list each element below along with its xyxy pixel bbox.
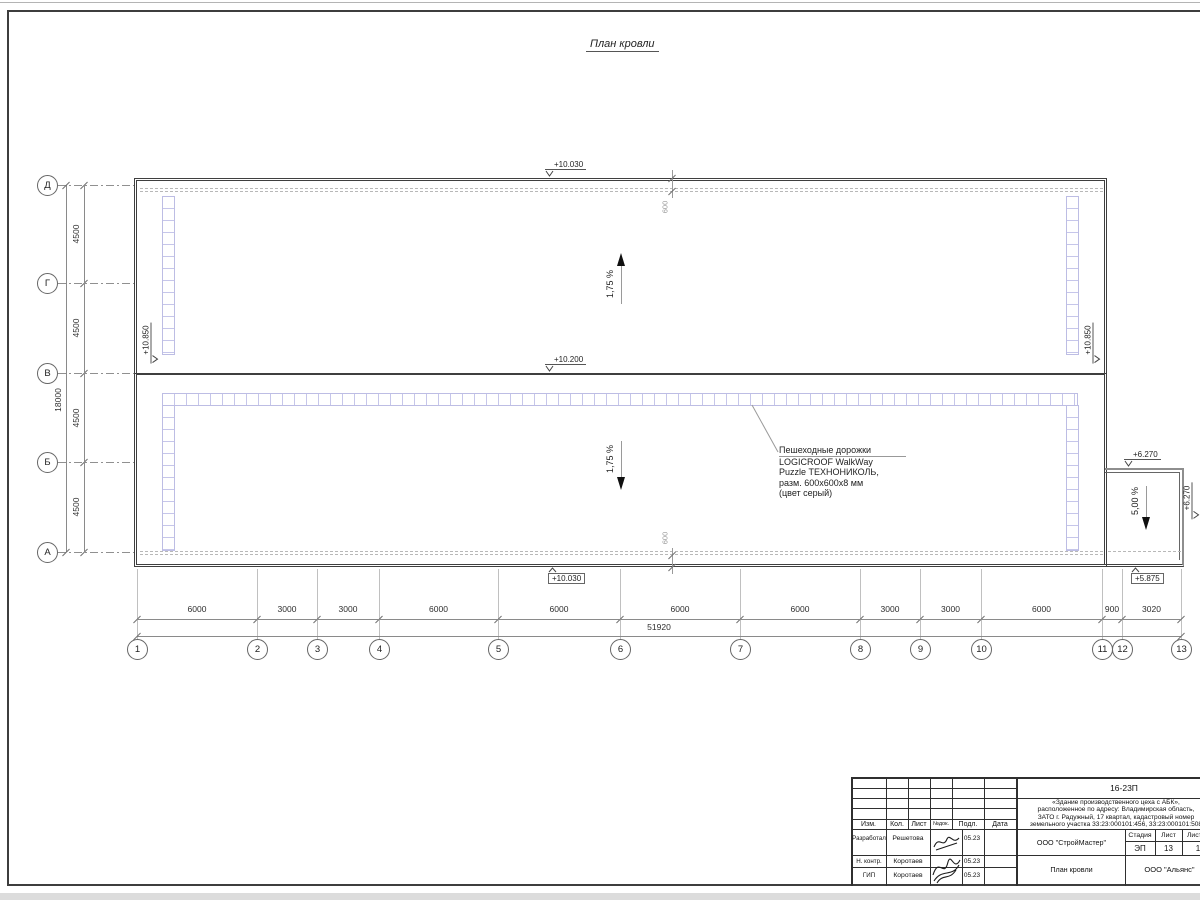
dimension-label: 6000 [534,604,584,614]
dimension-label: 3000 [323,604,373,614]
dimension-label: 4500 [71,225,81,244]
axis-extension-line [1181,569,1182,639]
titleblock-col-izm: Изм. [851,819,886,829]
dimension-label: 6000 [655,604,705,614]
axis-bubble-col-8: 8 [850,639,871,660]
dimension-line-bottom [137,619,1181,620]
axis-bubble-col-6: 6 [610,639,631,660]
titleblock-role: Н. контр. [852,856,886,866]
walkway-band-lower [162,393,1078,406]
elevation-mark-annex-bottom: +5.875 [1131,567,1164,584]
titleblock-sheets-label: Листов [1182,829,1200,841]
axis-line-row [58,283,134,284]
dimension-label: 6000 [1017,604,1067,614]
walkway-strip-upper-right [1066,196,1079,355]
axis-extension-line [981,569,982,639]
roof-offset-line-bottom [140,551,1103,555]
slope-arrow-line-lower [621,441,622,478]
offset-dim-label-bottom: 600 [661,532,670,545]
axis-bubble-row: Г [37,273,58,294]
titleblock-col-list: Лист [908,819,930,829]
axis-bubble-col-10: 10 [971,639,992,660]
axis-bubble-col-5: 5 [488,639,509,660]
axis-extension-line [137,569,138,639]
axis-line-row [58,373,134,374]
elevation-value: +6.270 [1183,483,1193,520]
dimension-line-left [84,185,85,552]
slope-arrow-down-icon [1142,517,1150,530]
axis-bubble-col-7: 7 [730,639,751,660]
axis-bubble-col-9: 9 [910,639,931,660]
walkway-strip-lower-right [1066,405,1079,551]
axis-bubble-row: А [37,542,58,563]
titleblock-org1: ООО "СтройМастер" [1018,829,1125,855]
axis-bubble-row: Д [37,175,58,196]
dimension-label: 3020 [1127,604,1177,614]
titleblock-date: 05.23 [960,856,984,866]
dimension-label: 3000 [262,604,312,614]
axis-extension-line [740,569,741,639]
titleblock-line [851,788,1016,789]
frame-left [7,10,9,886]
axis-extension-line [920,569,921,639]
walkway-note: Пешеходные дорожки LOGICROOF WalkWay Puz… [779,445,906,499]
elevation-value: +10.850 [142,322,152,363]
titleblock-name: Коротаев [886,856,930,866]
axis-line-row [58,552,134,553]
axis-bubble-col-11: 11 [1092,639,1113,660]
titleblock-col-kol: Кол. [886,819,908,829]
offset-dim-line-top [672,170,673,198]
titleblock-stage-value: ЭП [1125,841,1155,855]
slope-label-lower: 1,75 % [605,445,615,473]
dimension-total-label: 18000 [53,388,63,412]
walkway-note-line: (цвет серый) [779,488,906,499]
axis-bubble-col-3: 3 [307,639,328,660]
elevation-mark-roof-top: +10.030 [545,160,586,177]
titleblock-col-ndok: №док. [930,819,952,829]
walkway-strip-upper-left [162,196,175,355]
walkway-note-line: Пешеходные дорожки [779,445,906,457]
axis-extension-line [317,569,318,639]
signature-icon [931,831,961,853]
project-line: ЗАТО г. Радужный, 17 квартал, кадастровы… [1020,814,1200,821]
titleblock-role: ГИП [852,870,886,880]
axis-bubble-row: Б [37,452,58,473]
elevation-value: +6.270 [1124,450,1161,460]
offset-dim-line-bottom [672,548,673,574]
frame-bottom [7,884,1200,886]
titleblock-col-podl: Подл. [952,819,984,829]
axis-bubble-col-4: 4 [369,639,390,660]
frame-top [7,10,1200,12]
titleblock-role: Разработал [852,833,886,843]
elevation-value: +5.875 [1131,573,1164,584]
sheet-edge-bottom [0,893,1200,900]
axis-bubble-col-2: 2 [247,639,268,660]
walkway-note-line: LOGICROOF WalkWay [779,457,906,468]
slope-label-annex: 5,00 % [1130,487,1140,515]
axis-bubble-col-1: 1 [127,639,148,660]
dimension-label: 4500 [71,319,81,338]
dimension-label: 6000 [172,604,222,614]
dimension-line-total-left [66,185,67,552]
slope-arrow-up-icon [617,253,625,266]
project-line: расположенное по адресу: Владимирская об… [1020,806,1200,813]
elevation-mark-annex-top: +6.270 [1124,450,1161,467]
elevation-value: +10.200 [545,355,586,365]
slope-arrow-down-icon [617,477,625,490]
axis-extension-line [860,569,861,639]
slope-arrow-line-upper [621,264,622,304]
elevation-mark-roof-bottom: +10.030 [548,567,585,584]
blueprint-sheet: План кровли Пешеходные дорожки LOGICROOF… [0,0,1200,900]
elevation-value: +10.850 [1084,322,1094,363]
walkway-note-line: Puzzle ТЕХНОНИКОЛЬ, [779,467,906,478]
walkway-note-line: разм. 600x600x8 мм [779,478,906,489]
dimension-label: 3000 [865,604,915,614]
axis-bubble-col-12: 12 [1112,639,1133,660]
dimension-total-label: 51920 [619,622,699,632]
dimension-line-total-bottom [137,636,1181,637]
project-line: земельного участка 33:23:000101:456, 33:… [1020,821,1200,828]
axis-line-row [58,462,134,463]
titleblock-drawing-title: План кровли [1018,855,1125,884]
titleblock-name: Решетова [886,833,930,843]
slope-arrow-line-annex [1146,486,1147,518]
axis-line-row [58,185,134,186]
dimension-label: 4500 [71,408,81,427]
titleblock-project: «Здание производственного цеха с АБК», р… [1020,799,1200,829]
titleblock-doc-number: 16-23П [1018,777,1200,798]
titleblock-name: Коротаев [886,870,930,880]
titleblock-sheets-value: 1 [1182,841,1200,855]
titleblock-stage-label: Стадия [1125,829,1155,841]
signature-icon [929,853,962,884]
roof-offset-line-top [140,188,1103,192]
elevation-mark-parapet-right: +10.850 [1084,322,1101,363]
axis-extension-line [379,569,380,639]
page-title: План кровли [586,38,659,52]
titleblock-line [851,808,1016,809]
offset-dim-label-top: 600 [661,201,670,214]
sheet-edge-top [0,2,1200,3]
titleblock-date: 05.23 [960,870,984,880]
elevation-mark-parapet-left: +10.850 [142,322,159,363]
titleblock-line [984,777,985,886]
titleblock-date: 05.23 [960,833,984,843]
titleblock-sheet-label: Лист [1155,829,1182,841]
elevation-mark-annex-right: +6.270 [1183,483,1200,520]
axis-bubble-row: В [37,363,58,384]
elevation-value: +10.030 [548,573,585,584]
titleblock-org2: ООО "Альянс" [1125,855,1200,884]
walkway-strip-lower-left [162,405,175,551]
axis-extension-line [257,569,258,639]
titleblock-col-data: Дата [984,819,1016,829]
elevation-value: +10.030 [545,160,586,170]
dimension-label: 6000 [775,604,825,614]
titleblock-sheet-value: 13 [1155,841,1182,855]
elevation-mark-ridge: +10.200 [545,355,586,372]
annex-inner-line [1105,472,1180,560]
annex-offset-line [1108,551,1181,553]
dimension-label: 6000 [414,604,464,614]
dimension-label: 3000 [926,604,976,614]
axis-bubble-col-13: 13 [1171,639,1192,660]
dimension-label: 4500 [71,498,81,517]
slope-label-upper: 1,75 % [605,270,615,298]
axis-extension-line [498,569,499,639]
